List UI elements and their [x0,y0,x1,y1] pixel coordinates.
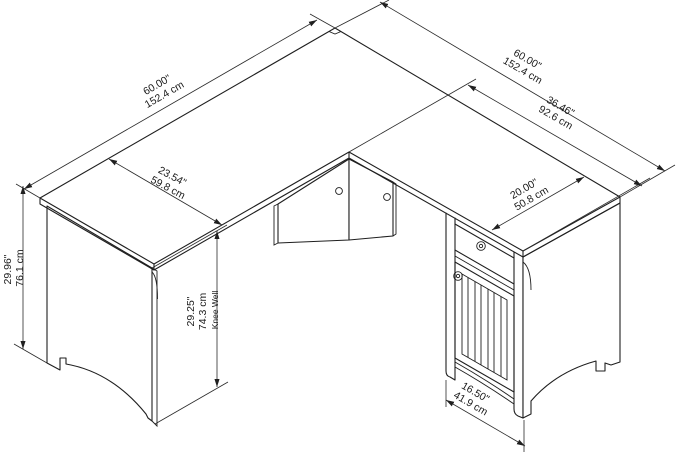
dim-left-back-width-label: 60.00" 152.4 cm [137,68,187,111]
corner-rail-left-end-edge [274,204,278,245]
cabinet-left-stile [446,213,455,380]
dim-right-back-width-label: 60.00" 152.4 cm [501,44,551,87]
cabinet-door [454,262,514,392]
dim-cabinet-width: 16.50" 41.9 cm [446,379,525,452]
diagram-canvas: 60.00" 152.4 cm 60.00" 152.4 cm 36.46" 9… [0,0,679,453]
desk-drawing [40,28,620,426]
left-pedestal-edge-strip [152,268,157,426]
cabinet-right-stile [514,252,523,418]
drawer-knob-icon [477,242,486,251]
dim-knee-well-label: 29.25" 74.3 cm Knee Well [185,290,220,330]
dim-cabinet-width-label: 16.50" 41.9 cm [451,379,496,419]
dim-height: 29.96" 76.1 cm [2,186,47,363]
dim-height-label: 29.96" 76.1 cm [2,249,26,287]
desk-dimension-diagram: 60.00" 152.4 cm 60.00" 152.4 cm 36.46" 9… [0,0,679,453]
